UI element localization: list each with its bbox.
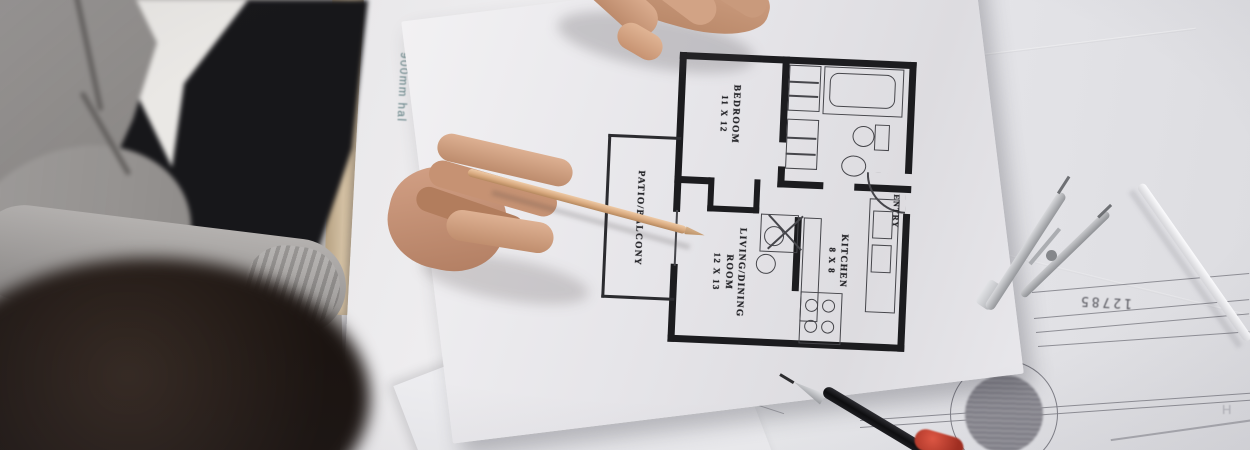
wall-right-upper xyxy=(905,62,917,174)
bedroom-label: BEDROOM 11 X 12 xyxy=(716,84,743,144)
wall-bath-bottom xyxy=(777,180,823,189)
bathtub-basin xyxy=(829,72,896,109)
kitchen-name: KITCHEN xyxy=(836,234,851,288)
kitchen-label: KITCHEN 8 X 8 xyxy=(824,233,850,288)
wall-bottom xyxy=(667,335,904,352)
wall-right-lower xyxy=(897,214,910,352)
floorplan-drawing: BEDROOM 11 X 12 LIVING/DINING ROOM 12 X … xyxy=(667,52,920,354)
bath-closet xyxy=(788,65,822,112)
toilet-bowl xyxy=(852,125,875,147)
dimension-text: 12785 xyxy=(1078,293,1133,311)
detail-callout-hatch xyxy=(965,375,1043,450)
living-label: LIVING/DINING ROOM 12 X 13 xyxy=(708,227,748,318)
bath-sink xyxy=(841,155,867,177)
faint-mark: H xyxy=(1222,402,1231,417)
bath-vanity xyxy=(785,119,819,170)
nook-wall xyxy=(753,179,760,213)
kitchen-sink-basin xyxy=(755,253,776,274)
kitchen-appliance xyxy=(871,244,892,273)
stove xyxy=(798,291,842,345)
photo-scene: 12785 H 300mm hal 900mm hal xyxy=(0,0,1250,450)
compass-screw xyxy=(1046,250,1057,261)
bedroom-name: BEDROOM xyxy=(728,84,743,144)
nook-wall xyxy=(707,205,759,213)
toilet-tank xyxy=(874,124,890,151)
entry-label: ENTRY xyxy=(889,194,901,229)
